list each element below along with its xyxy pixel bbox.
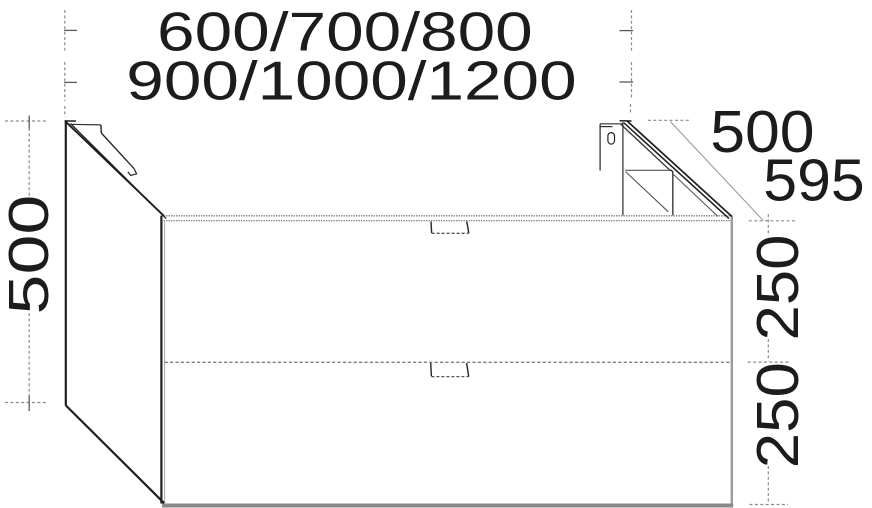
svg-text:250: 250 [745,362,812,468]
svg-text:500: 500 [0,195,60,315]
svg-text:900/1000/1200: 900/1000/1200 [126,50,576,111]
svg-text:250: 250 [745,234,812,340]
svg-text:595: 595 [763,147,864,213]
